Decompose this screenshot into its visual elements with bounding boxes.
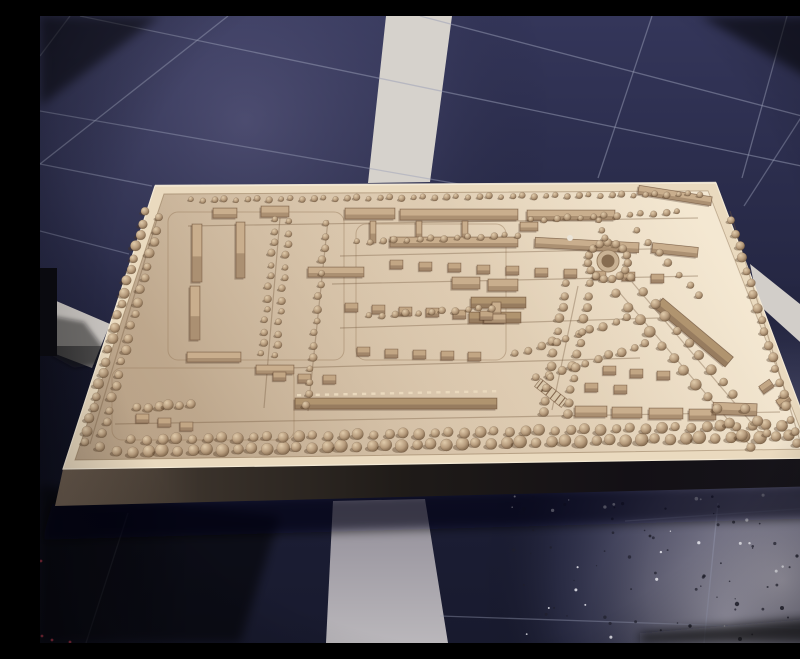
- red-speck: [51, 639, 54, 642]
- photo-architectural-model: [40, 16, 800, 643]
- scene-svg: [40, 16, 800, 643]
- vignette: [40, 16, 800, 643]
- vignette-overlay: [40, 16, 800, 643]
- red-speck: [41, 635, 44, 638]
